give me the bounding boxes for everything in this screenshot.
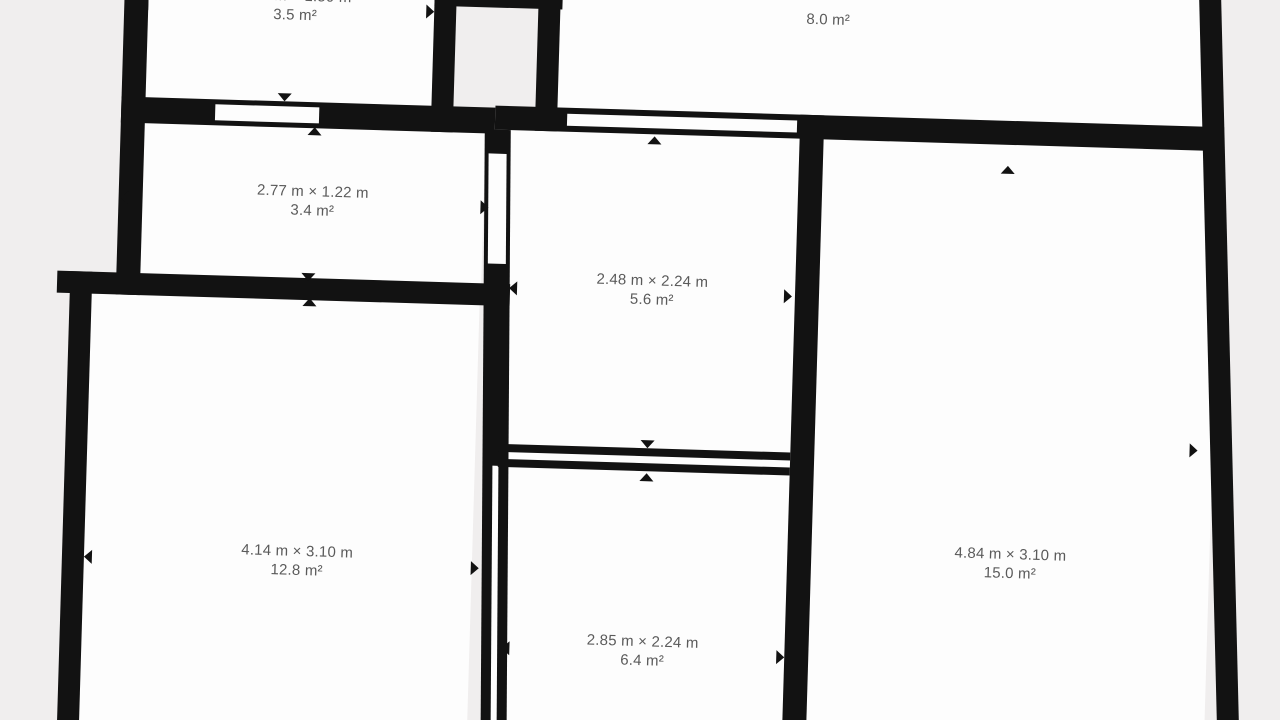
dimension-arrow-left-icon — [501, 641, 509, 655]
dimension-arrow-right-icon — [1189, 443, 1197, 457]
dimension-arrow-down-icon — [278, 93, 292, 101]
wall-center-divider — [480, 129, 510, 720]
dimension-arrow-up-icon — [639, 473, 653, 481]
dimension-arrow-up-icon — [308, 127, 322, 135]
dimension-arrow-right-icon — [471, 561, 479, 575]
room-label-bottom-left: 4.14 m × 3.10 m 12.8 m² — [186, 539, 407, 584]
floor-plan: 2.32 m × 1.50 m 3.5 m² 8.0 m² 2.77 m × 1… — [0, 0, 1280, 720]
room-label-center: 2.48 m × 2.24 m 5.6 m² — [542, 268, 763, 313]
room-bottom-left — [78, 294, 479, 720]
dimension-arrow-down-icon — [301, 273, 315, 281]
dimension-arrow-left-icon — [120, 191, 128, 205]
door-opening-topleft — [215, 104, 319, 123]
dimension-arrow-down-icon — [640, 440, 654, 448]
dimension-arrow-up-icon — [302, 298, 316, 306]
dimension-arrow-up-icon — [1001, 166, 1015, 174]
door-opening-center-left — [488, 153, 507, 264]
room-label-middle-left: 2.77 m × 1.22 m 3.4 m² — [202, 179, 423, 224]
dimension-arrow-left-icon — [84, 550, 92, 564]
room-bottom-center — [492, 467, 789, 720]
dimension-arrow-left-icon — [140, 0, 148, 10]
room-label-bottom-center: 2.85 m × 2.24 m 6.4 m² — [532, 629, 753, 674]
room-right — [805, 115, 1222, 720]
dimension-arrow-right-icon — [426, 5, 434, 19]
dimension-arrow-right-icon — [784, 289, 792, 303]
floor-plan-canvas: 2.32 m × 1.50 m 3.5 m² 8.0 m² 2.77 m × 1… — [0, 0, 1280, 720]
dimension-arrow-right-icon — [776, 650, 784, 664]
dimension-arrow-left-icon — [509, 281, 517, 295]
dimension-arrow-right-icon — [480, 200, 488, 214]
room-label-right: 4.84 m × 3.10 m 15.0 m² — [900, 542, 1121, 587]
dimension-arrow-up-icon — [647, 136, 661, 144]
wall-seam — [490, 466, 498, 720]
